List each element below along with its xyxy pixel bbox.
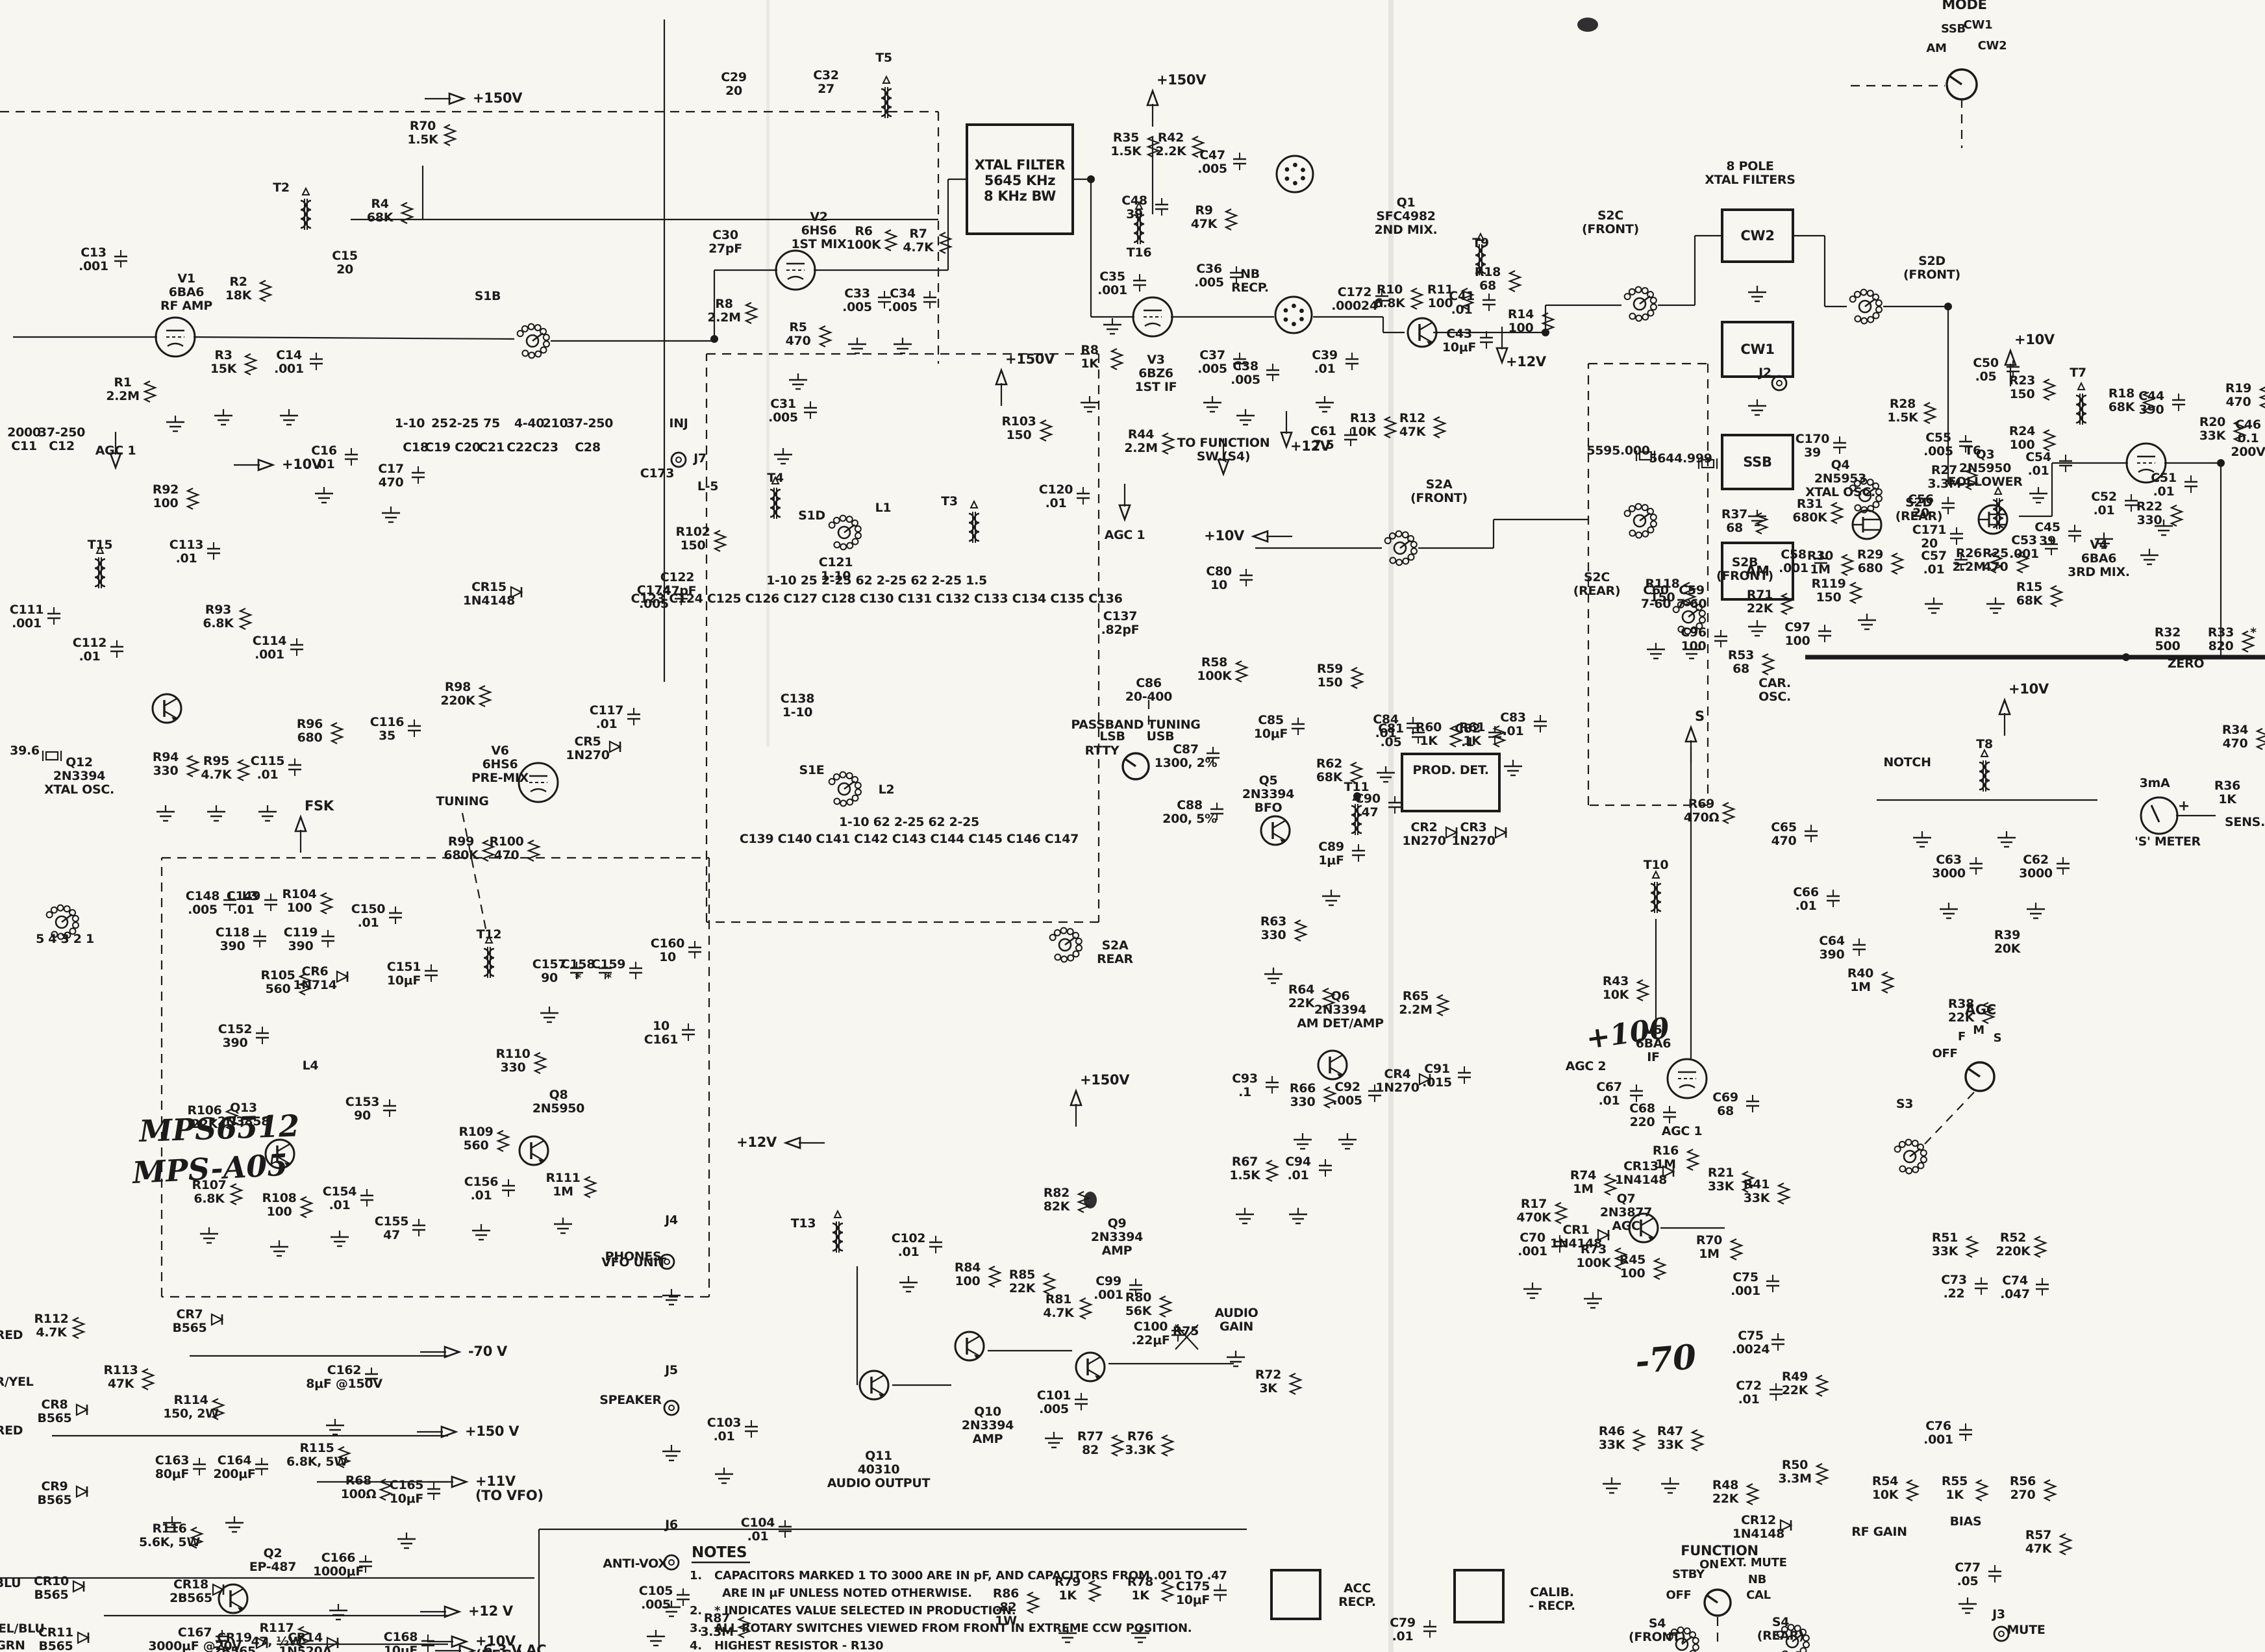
svg-text:R69470Ω: R69470Ω [1684,797,1720,825]
label-t16: T16 [1127,245,1152,260]
svg-text:CR182B565: CR182B565 [169,1577,212,1605]
svg-text:+12 V: +12 V [468,1603,514,1619]
svg-text:C84.01: C84.01 [1373,712,1399,740]
svg-text:R3920K: R3920K [1994,928,2021,956]
svg-text:T4: T4 [767,471,784,485]
svg-text:C51.01: C51.01 [2151,471,2176,499]
label-c137: C137.82pF [1101,609,1140,637]
label-sens: SENS. [2225,815,2265,829]
svg-text:C114.001: C114.001 [253,634,286,662]
svg-text:R105560: R105560 [260,968,295,996]
label-l2: L2 [879,782,895,797]
svg-text:CW2: CW2 [1978,39,2007,53]
svg-text:F: F [1958,1030,1966,1044]
svg-text:T16: T16 [1127,245,1152,260]
svg-text:+150V: +150V [1080,1072,1130,1088]
svg-text:CAR.OSC.: CAR.OSC. [1758,676,1791,704]
svg-text:C19: C19 [425,440,450,455]
svg-text:R109560: R109560 [458,1125,493,1153]
svg-text:C65470: C65470 [1771,820,1796,848]
label-t2: T2 [273,181,290,195]
label-calib: CALIB.- RECP. [1529,1585,1575,1613]
svg-text:C15110μF: C15110μF [387,960,421,988]
junction-dot [710,335,718,343]
svg-text:NOTCH: NOTCH [1883,755,1931,770]
svg-text:S1B: S1B [475,289,501,303]
label-tuning: TUNING [436,794,488,808]
svg-text:C597-60: C597-60 [1677,583,1707,611]
svg-text:R84100: R84100 [955,1260,981,1288]
svg-text:USB: USB [1147,729,1175,744]
svg-text:C53.001: C53.001 [2009,533,2039,561]
label-t8: T8 [1976,737,1993,751]
svg-text:R73100K: R73100K [1576,1242,1612,1270]
svg-text:5595.000: 5595.000 [1586,444,1649,458]
svg-text:S1D: S1D [798,508,825,523]
svg-text:+10V: +10V [2014,332,2055,347]
svg-text:C148.005: C148.005 [186,889,219,917]
label-25: 25 [431,416,448,431]
svg-text:C3027pF: C3027pF [708,228,742,256]
label-l-5: L-5 [697,479,718,494]
svg-text:R24100: R24100 [2009,424,2035,452]
svg-text:R56270: R56270 [2010,1474,2036,1502]
svg-text:T15: T15 [88,538,113,552]
junction-dot [1944,303,1952,310]
svg-text:SSB: SSB [1743,455,1771,470]
svg-text:R954.7K: R954.7K [201,754,232,782]
svg-text:C172.00024: C172.00024 [1331,285,1378,313]
svg-text:C137.82pF: C137.82pF [1101,609,1140,637]
svg-text:S1E: S1E [799,763,825,777]
svg-text:+12V: +12V [1290,438,1331,454]
svg-text:C50.05: C50.05 [1973,356,1999,384]
label-rtty: RTTY [1085,744,1120,758]
svg-text:C38.005: C38.005 [1231,359,1260,387]
junction-dot [2122,653,2130,661]
label-c138: C1381-10 [781,692,814,720]
label-c59: C597-60 [1677,583,1707,611]
svg-text:R1247K: R1247K [1399,411,1427,439]
svg-text:5 4 3 2 1: 5 4 3 2 1 [36,932,94,946]
svg-text:ON: ON [1699,1558,1719,1571]
svg-text:C94.01: C94.01 [1285,1155,1311,1183]
label-c123-c124-c125-c126-c127-c128-c130-c131-c132-c133-c134-c135-c136: C123 C124 C125 C126 C127 C128 C130 C131 … [631,592,1122,606]
svg-text:C17470: C17470 [378,462,403,490]
svg-text:C633000: C633000 [1932,853,1966,881]
svg-text:C74.047: C74.047 [2000,1273,2030,1301]
svg-text:T5: T5 [875,51,892,65]
svg-text:R741M: R741M [1570,1168,1596,1196]
label-blu: BLU [0,1576,21,1590]
svg-text:R401M: R401M [1847,966,1873,994]
schematic-page: XTAL FILTER5645 KHz8 KHz BWCW2CW1SSBAMMO… [0,0,2265,1652]
svg-text:C64390: C64390 [1819,934,1845,962]
svg-text:39.6: 39.6 [10,744,40,758]
label-c173: C173 [640,466,674,481]
svg-text:ARE IN μF UNLESS NOTED OTHERWI: ARE IN μF UNLESS NOTED OTHERWISE. [722,1586,972,1600]
svg-text:R1310K: R1310K [1350,411,1377,439]
svg-text:AM: AM [1926,42,1946,55]
svg-text:C28: C28 [575,440,601,455]
svg-text:AGC 1: AGC 1 [1662,1124,1703,1138]
svg-text:L1: L1 [875,501,892,515]
svg-text:R3822K: R3822K [1948,997,1975,1025]
svg-text:INJ: INJ [669,416,688,431]
svg-text:4-40: 4-40 [514,416,544,431]
svg-text:R4633K: R4633K [1599,1424,1626,1452]
svg-text:C97100: C97100 [1784,620,1810,648]
svg-text:*: * [2250,625,2257,640]
label-s2a: S2AREAR [1097,938,1133,966]
svg-text:+150V: +150V [1005,351,1055,367]
label-j4: J4 [664,1213,678,1227]
scan-smudge [1388,0,1394,1652]
label-c30: C3027pF [708,228,742,256]
label-phones: PHONES [605,1249,662,1264]
svg-text:C139 C140 C141 C142 C143: C139 C140 C141 C142 C143 C144 C145 C146 … [740,832,1079,846]
svg-text:T10: T10 [1644,858,1669,872]
svg-text:C8510μF: C8510μF [1254,713,1288,741]
svg-text:R52220K: R52220K [1996,1231,2031,1258]
svg-text:C34.005: C34.005 [888,286,918,314]
svg-text:1.: 1. [690,1569,702,1583]
svg-text:210: 210 [543,416,568,431]
svg-text:RF GAIN: RF GAIN [1851,1525,1907,1539]
svg-text:+12V: +12V [736,1134,777,1150]
svg-text:M: M [1973,1023,1984,1037]
svg-text:C21: C21 [479,440,504,455]
svg-text:C75.001: C75.001 [1731,1270,1760,1298]
label-rf-gain: RF GAIN [1851,1525,1907,1539]
handwritten-70: -70 [1634,1337,1698,1382]
svg-text:R22330: R22330 [2136,499,2162,527]
svg-text:LSB: LSB [1099,729,1125,744]
label-t7: T7 [2070,366,2086,380]
svg-text:R5470: R5470 [786,320,811,348]
handwritten-mps6512: MPS6512 [138,1108,300,1149]
label-210: 210 [543,416,568,431]
svg-text:R33820: R33820 [2208,625,2234,653]
svg-text:R19470: R19470 [2225,381,2251,409]
svg-text:R8282K: R8282K [1044,1186,1071,1214]
label-j3: J3 [1991,1607,2005,1621]
label-inj: INJ [669,416,688,431]
svg-text:C607-60: C607-60 [1641,583,1671,611]
svg-text:R29680: R29680 [1857,547,1883,575]
label-usb: USB [1147,729,1175,744]
svg-text:2-25: 2-25 [449,416,479,431]
label-lsb: LSB [1099,729,1125,744]
svg-text:C16510μF: C16510μF [390,1478,423,1506]
label-agc-1: AGC 1 [1105,528,1145,542]
svg-text:R34470: R34470 [2222,723,2248,751]
ink-scribble [1577,18,1598,32]
label-zero: ZERO [2168,657,2204,671]
label-s1d: S1D [798,508,825,523]
svg-text:C96100: C96100 [1681,625,1707,653]
svg-text:CR7B565: CR7B565 [173,1307,207,1335]
svg-text:R4733K: R4733K [1657,1424,1684,1452]
svg-text:C67.01: C67.01 [1596,1080,1621,1108]
label-acc: ACCRECP. [1338,1581,1376,1609]
label-1-10-62-2-25-62-2-25: 1-10 62 2-25 62 2-25 [839,815,979,829]
label-prod-det: PROD. DET. [1412,763,1488,777]
svg-text:C41.01: C41.01 [1449,289,1474,317]
svg-text:R32500: R32500 [2155,625,2181,653]
svg-text:+150V: +150V [473,90,523,106]
svg-text:R422.2K: R422.2K [1155,131,1187,158]
svg-text:OFF: OFF [1933,1047,1958,1060]
junction-dot [1087,175,1095,183]
svg-text:R701.5K: R701.5K [407,119,439,147]
svg-text:MUTE: MUTE [2007,1623,2045,1637]
svg-text:R1568K: R1568K [2016,580,2044,608]
svg-text:CAPACITORS MARKED 1 TO 3000 AR: CAPACITORS MARKED 1 TO 3000 ARE IN pF, A… [714,1569,1227,1583]
label-t4: T4 [767,471,784,485]
svg-text:C68220: C68220 [1629,1101,1655,1129]
svg-text:C92.005: C92.005 [1333,1080,1362,1108]
svg-text:R7122K: R7122K [1747,588,1774,616]
svg-text:C31.005: C31.005 [768,397,798,425]
label-label: * [2250,625,2257,640]
svg-text:R1124.7K: R1124.7K [34,1312,68,1340]
label-2000: 2000C11 [7,425,41,453]
svg-text:BIAS: BIAS [1950,1514,1982,1529]
svg-text:R66330: R66330 [1290,1081,1316,1109]
svg-text:+12V: +12V [1506,354,1547,369]
label-notch: NOTCH [1883,755,1931,770]
svg-text:ZERO: ZERO [2168,657,2204,671]
svg-text:R2033K: R2033K [2199,415,2227,443]
svg-text:ACCRECP.: ACCRECP. [1338,1581,1376,1609]
svg-text:+10V: +10V [1204,528,1245,544]
svg-text:R45100: R45100 [1620,1253,1646,1281]
svg-text:C23: C23 [532,440,558,455]
svg-text:BLU: BLU [0,1576,21,1590]
svg-text:NOTES: NOTES [692,1544,747,1561]
svg-text:C111.001: C111.001 [10,603,44,631]
label-c22: C22 [507,440,532,455]
label-audio: AUDIOGAIN [1214,1306,1258,1334]
svg-text:6.3 V AC: 6.3 V AC [483,1642,546,1652]
label-c20: C20 [455,440,481,455]
svg-text:R102150: R102150 [675,525,710,553]
svg-text:R31680K: R31680K [1792,497,1828,525]
svg-text:C4310μF: C4310μF [1442,327,1476,355]
svg-text:C57.01: C57.01 [1921,549,1946,577]
svg-text:PASSBAND TUNING: PASSBAND TUNING [1071,718,1200,732]
svg-text:R814.7K: R814.7K [1043,1292,1075,1320]
svg-text:C91.015: C91.015 [1422,1062,1452,1090]
svg-text:R5410K: R5410K [1872,1474,1899,1502]
svg-text:R442.2M: R442.2M [1124,427,1157,455]
label-r39: R3920K [1994,928,2021,956]
label-t9: T9 [1472,236,1489,250]
svg-text:J7: J7 [692,451,707,466]
svg-text:1-10 62 2-25 62 2-: 1-10 62 2-25 62 2-25 [839,815,979,829]
svg-text:1-10: 1-10 [395,416,425,431]
svg-text:C152390: C152390 [218,1022,252,1050]
svg-text:S: S [1695,708,1705,724]
label-4-40: 4-40 [514,416,544,431]
svg-text:NB: NB [1748,1573,1766,1586]
svg-text:3mA: 3mA [2140,776,2170,790]
svg-text:R4922K: R4922K [1782,1370,1809,1397]
svg-text:C16810μF: C16810μF [384,1630,418,1652]
label-t5: T5 [875,51,892,65]
svg-text:C33.005: C33.005 [842,286,872,314]
svg-text:PROD. DET.: PROD. DET. [1412,763,1488,777]
svg-text:C20: C20 [455,440,481,455]
label-5-4-3-2-1: 5 4 3 2 1 [36,932,94,946]
svg-text:R6268K: R6268K [1316,757,1344,784]
svg-text:L2: L2 [879,782,895,797]
label-bias: BIAS [1950,1514,1982,1529]
svg-text:C52.01: C52.01 [2091,490,2116,518]
svg-text:25: 25 [431,416,448,431]
svg-text:R99680K: R99680K [444,834,479,862]
svg-text:C70.001: C70.001 [1518,1231,1547,1258]
svg-text:RED: RED [0,1423,23,1438]
svg-text:SPEAKER: SPEAKER [599,1393,662,1407]
svg-text:R108100: R108100 [262,1191,296,1219]
label-j7: J7 [692,451,707,466]
svg-text:R92100: R92100 [153,482,179,510]
svg-text:S3: S3 [1896,1097,1913,1111]
label-j6: J6 [664,1518,678,1532]
label-1-10-25-2-25-62-2-25-62-2-25-1-5: 1-10 25 2-25 62 2-25 62 2-25 1.5 [766,573,987,588]
svg-text:R96680: R96680 [297,717,323,745]
svg-text:CW2: CW2 [1740,228,1774,244]
label-passband-tuning: PASSBAND TUNING [1071,718,1200,732]
svg-text:RTTY: RTTY [1085,744,1120,758]
label-t13: T13 [791,1216,816,1231]
svg-text:R2133K: R2133K [1708,1166,1735,1194]
svg-text:R104100: R104100 [282,887,316,915]
svg-text:YEL/BLU: YEL/BLU [0,1621,45,1636]
svg-text:RED: RED [0,1328,23,1342]
svg-text:CR10B565: CR10B565 [34,1574,69,1602]
svg-text:R106.8K: R106.8K [1374,282,1406,310]
label-c23: C23 [532,440,558,455]
svg-text:CR192B565: CR192B565 [213,1631,256,1652]
svg-text:R103150: R103150 [1001,414,1036,442]
label-s-meter: 'S' METER [2134,834,2201,849]
svg-text:C13.001: C13.001 [79,245,108,273]
svg-text:R5747K: R5747K [2025,1528,2053,1556]
svg-text:+150V: +150V [1157,72,1207,88]
svg-text:3.: 3. [690,1621,702,1635]
svg-text:T9: T9 [1472,236,1489,250]
svg-text:T12: T12 [477,927,502,942]
svg-text:C118390: C118390 [216,925,249,953]
svg-text:HIGHEST RESISTOR - R130: HIGHEST RESISTOR - R130 [714,1639,883,1652]
label-s1e: S1E [799,763,825,777]
svg-text:CALIB.- RECP.: CALIB.- RECP. [1529,1585,1575,1613]
svg-text:R4310K: R4310K [1603,974,1630,1002]
svg-text:C14.001: C14.001 [274,348,304,376]
svg-text:R4133K: R4133K [1744,1177,1771,1205]
svg-text:C54.01: C54.01 [2025,450,2051,478]
svg-text:R17470K: R17470K [1516,1197,1552,1225]
label-c19: C19 [425,440,450,455]
label-anti-vox: ANTI-VOX [603,1557,668,1571]
svg-text:+10V: +10V [2008,681,2049,697]
svg-text:J6: J6 [664,1518,678,1532]
svg-text:S2AREAR: S2AREAR [1097,938,1133,966]
svg-text:C90.47: C90.47 [1355,792,1381,820]
svg-text:AGC 1: AGC 1 [1105,528,1145,542]
svg-text:R81K: R81K [1081,343,1099,371]
svg-text:R11347K: R11347K [103,1363,138,1391]
label-75: 75 [483,416,500,431]
label-r-yel: R/YEL [0,1375,34,1389]
label-c60: C607-60 [1641,583,1671,611]
svg-text:C39.01: C39.01 [1312,348,1337,376]
svg-text:C17510μF: C17510μF [1176,1579,1210,1607]
svg-text:R503.3M: R503.3M [1778,1458,1811,1486]
label-l1: L1 [875,501,892,515]
svg-text:GRN: GRN [0,1638,25,1652]
label-t3: T3 [941,494,958,508]
svg-text:EXT. MUTE: EXT. MUTE [1720,1556,1786,1570]
svg-text:T3: T3 [941,494,958,508]
svg-text:C37.005: C37.005 [1197,348,1227,376]
svg-text:R8522K: R8522K [1009,1268,1036,1295]
schematic-canvas: XTAL FILTER5645 KHz8 KHz BWCW2CW1SSBAMMO… [0,0,2265,1652]
svg-text:T2: T2 [273,181,290,195]
svg-text:R/YEL: R/YEL [0,1375,34,1389]
svg-text:CW1: CW1 [1964,18,1993,32]
svg-text:C44390: C44390 [2138,389,2164,417]
label-r32: R32500 [2155,625,2181,653]
svg-text:C101.005: C101.005 [1037,1388,1071,1416]
svg-text:C22: C22 [507,440,532,455]
svg-text:AGC 2: AGC 2 [1566,1059,1607,1073]
svg-text:C58.001: C58.001 [1779,547,1808,575]
svg-text:ALL ROTARY SWITCHES VIEWED FRO: ALL ROTARY SWITCHES VIEWED FROM FRONT IN… [714,1621,1192,1635]
svg-text:CAL: CAL [1746,1588,1771,1602]
label-c139-c140-c141-c142-c143-c144-c145-c146-c147: C139 C140 C141 C142 C143 C144 C145 C146 … [740,832,1079,846]
svg-text:L4: L4 [303,1058,319,1073]
svg-text:T13: T13 [791,1216,816,1231]
svg-text:R68100Ω: R68100Ω [341,1473,377,1501]
svg-text:C164200μF: C164200μF [213,1453,255,1481]
svg-text:C623000: C623000 [2019,853,2053,881]
svg-text:+150 V: +150 V [465,1423,519,1439]
svg-text:2000C11: 2000C11 [7,425,41,453]
svg-text:R1868K: R1868K [2109,386,2136,414]
svg-text:C72.01: C72.01 [1736,1379,1761,1407]
svg-text:R25470: R25470 [1983,546,2008,574]
svg-text:+10V: +10V [282,457,323,472]
svg-text:R652.2M: R652.2M [1399,989,1432,1017]
svg-text:R100470: R100470 [489,834,523,862]
label-37-250: 37-250 [566,416,613,431]
svg-text:MODE: MODE [1942,0,1986,12]
label-c28: C28 [575,440,601,455]
junction-dot [2217,459,2225,467]
svg-text:TUNING: TUNING [436,794,488,808]
label-3ma: 3mA [2140,776,2170,790]
label-t10: T10 [1644,858,1669,872]
label-s3: S3 [1896,1097,1913,1111]
svg-text:C35.001: C35.001 [1097,269,1127,297]
svg-text:C36.005: C36.005 [1194,262,1224,290]
svg-text:SENS.: SENS. [2225,815,2265,829]
svg-text:R351.5K: R351.5K [1110,131,1142,158]
